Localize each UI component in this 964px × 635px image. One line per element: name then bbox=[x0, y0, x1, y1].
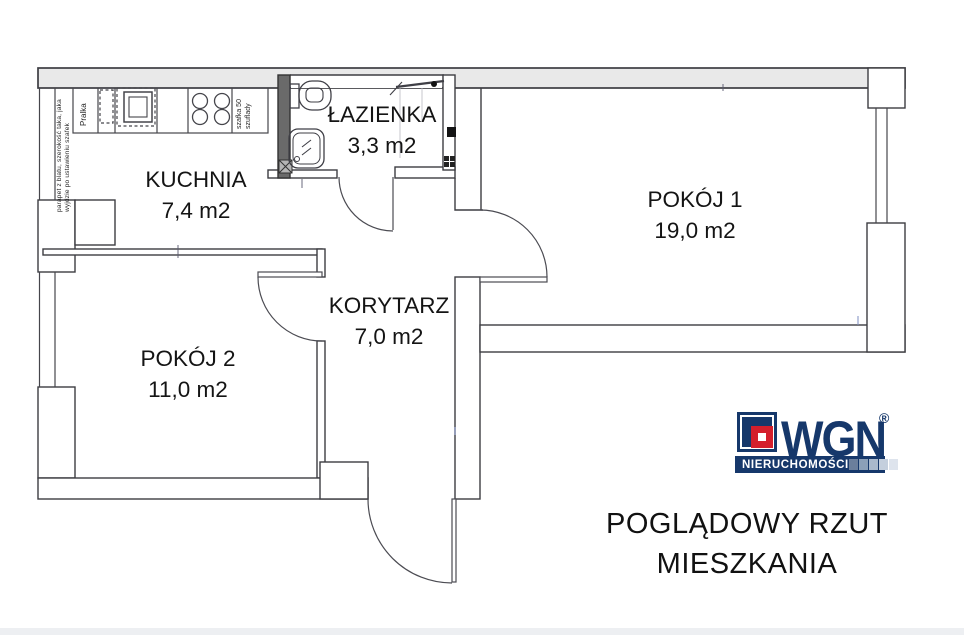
cabinet-note-line2: szuflady bbox=[245, 103, 252, 129]
room-area: 7,4 m2 bbox=[145, 195, 246, 226]
doors bbox=[258, 177, 547, 583]
logo-tagline-bar: NIERUCHOMOŚCI bbox=[735, 456, 885, 473]
room-name: KORYTARZ bbox=[329, 290, 449, 321]
window-note-line2: wyjdzie po ustawieniu szafek bbox=[64, 123, 71, 212]
entrance-door bbox=[368, 499, 456, 583]
room-label-kuchnia: KUCHNIA 7,4 m2 bbox=[145, 164, 246, 226]
registered-trademark-symbol: ® bbox=[879, 410, 889, 426]
vent-mark bbox=[447, 127, 456, 137]
logo-pixel-decoration bbox=[849, 459, 898, 470]
room-area: 3,3 m2 bbox=[328, 130, 437, 161]
bottom-edge-strip bbox=[0, 628, 964, 635]
window-note-line1: parapet z blatu, szerokość taka, jaka bbox=[56, 99, 63, 212]
stove-icon bbox=[193, 94, 230, 125]
room-area: 7,0 m2 bbox=[329, 321, 449, 352]
logo-white-square bbox=[758, 433, 766, 441]
kitchen-sink-icon bbox=[124, 92, 152, 122]
room-name: KUCHNIA bbox=[145, 164, 246, 195]
room-name: POKÓJ 1 bbox=[647, 184, 742, 215]
logo-red-square bbox=[751, 426, 773, 448]
caption-line2: MIESZKANIA bbox=[577, 544, 917, 584]
floorplan-page: KUCHNIA 7,4 m2 ŁAZIENKA 3,3 m2 POKÓJ 1 1… bbox=[0, 0, 964, 635]
room-name: ŁAZIENKA bbox=[328, 99, 437, 130]
dashed-sink-cabinet bbox=[117, 88, 155, 126]
pokoj1-window bbox=[876, 108, 887, 223]
dashed-cabinet bbox=[100, 90, 113, 123]
pokoj2-door bbox=[258, 272, 322, 341]
bathroom-door bbox=[339, 177, 393, 231]
pokoj1-door bbox=[480, 210, 547, 282]
room-area: 19,0 m2 bbox=[647, 215, 742, 246]
room-label-pokoj2: POKÓJ 2 11,0 m2 bbox=[140, 343, 235, 405]
cabinet-note-line1: szafka 50 bbox=[236, 99, 243, 129]
kitchen-window bbox=[40, 88, 56, 200]
room-label-lazienka: ŁAZIENKA 3,3 m2 bbox=[328, 99, 437, 161]
wgn-logo: WGN ® NIERUCHOMOŚCI bbox=[713, 408, 898, 478]
washing-machine-label: Pralka bbox=[79, 103, 88, 126]
logo-tagline-text: NIERUCHOMOŚCI bbox=[735, 459, 849, 471]
caption-line1: POGLĄDOWY RZUT bbox=[577, 504, 917, 544]
logo-inner-border bbox=[740, 415, 774, 449]
room-label-pokoj1: POKÓJ 1 19,0 m2 bbox=[647, 184, 742, 246]
wgn-logo-icon bbox=[737, 412, 777, 452]
pokoj2-window bbox=[40, 272, 56, 387]
washbasin-icon bbox=[289, 129, 324, 168]
room-area: 11,0 m2 bbox=[140, 374, 235, 405]
room-name: POKÓJ 2 bbox=[140, 343, 235, 374]
plan-caption: POGLĄDOWY RZUT MIESZKANIA bbox=[577, 504, 917, 584]
room-label-korytarz: KORYTARZ 7,0 m2 bbox=[329, 290, 449, 352]
